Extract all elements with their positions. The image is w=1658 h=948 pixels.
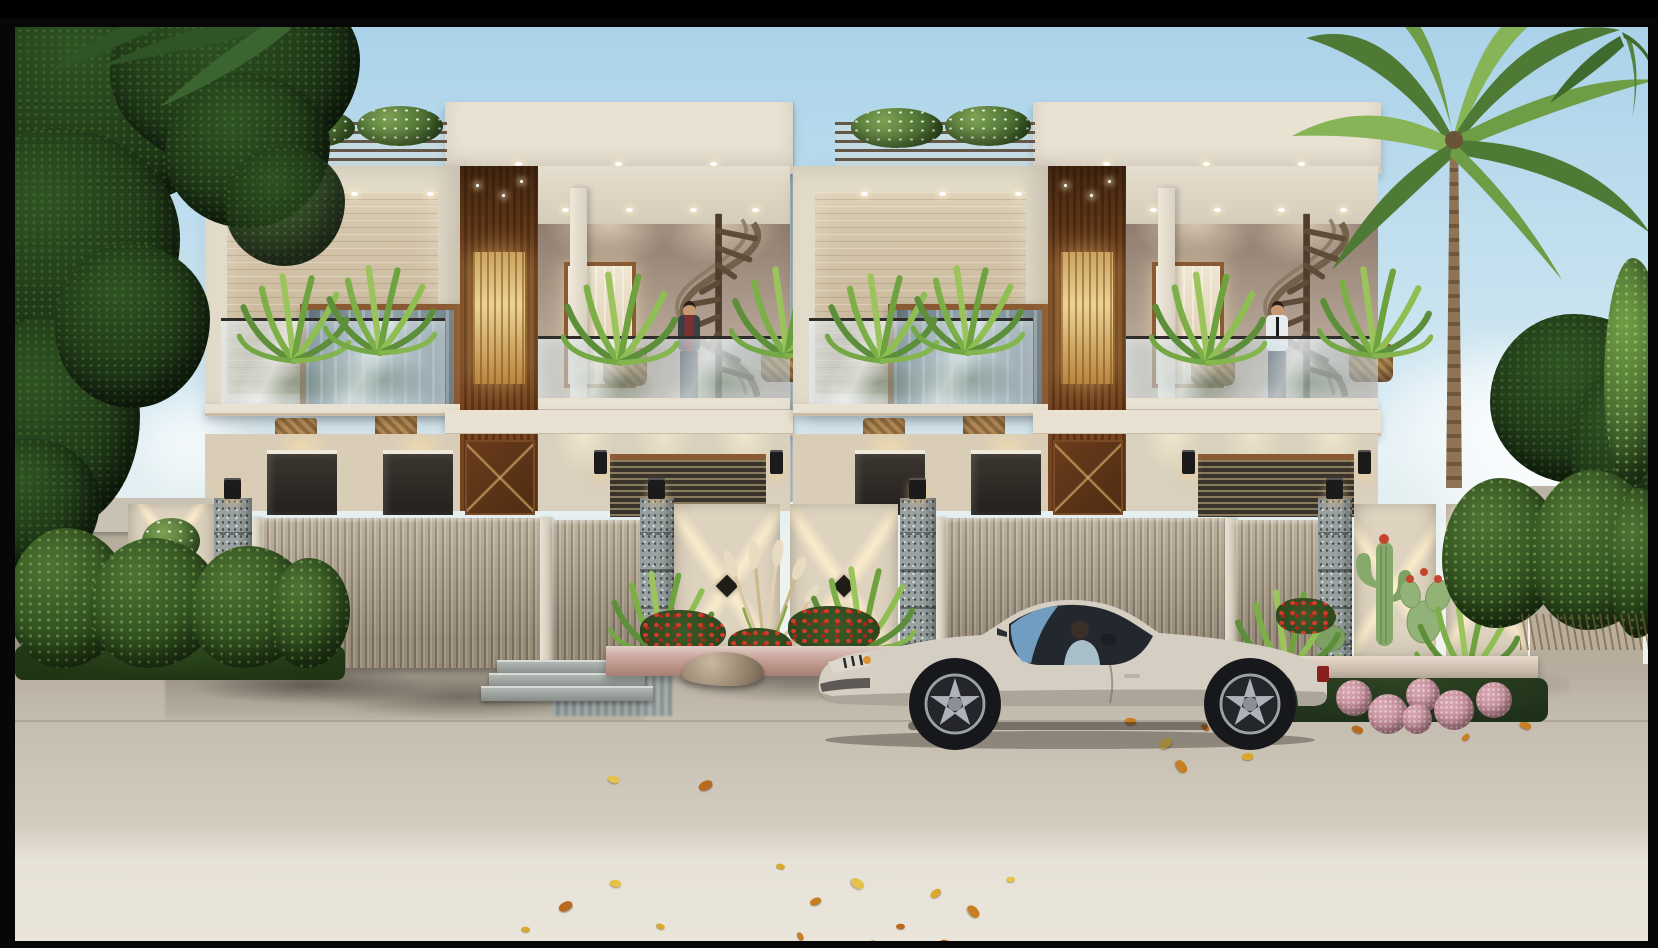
pillar-lamp	[1326, 478, 1343, 499]
driver-head	[1071, 621, 1089, 639]
hedge-right	[1400, 18, 1658, 718]
tail-lamp	[1317, 666, 1329, 682]
frame-border-right	[1648, 18, 1658, 948]
architectural-render-scene	[0, 18, 1658, 948]
pillar-lamp	[648, 478, 665, 499]
pillar-lamp	[909, 478, 926, 499]
frame-border-left	[0, 18, 15, 948]
pink-pompom	[1336, 680, 1372, 716]
sports-coupe	[812, 576, 1335, 751]
hedge-left	[0, 18, 400, 718]
frame-border-bottom	[0, 941, 1658, 948]
frame-border-top	[0, 18, 1658, 27]
gate-post	[540, 518, 552, 666]
front-wheel	[909, 658, 1001, 750]
rear-wheel	[1204, 658, 1296, 750]
hedge-twigs	[1520, 614, 1658, 650]
